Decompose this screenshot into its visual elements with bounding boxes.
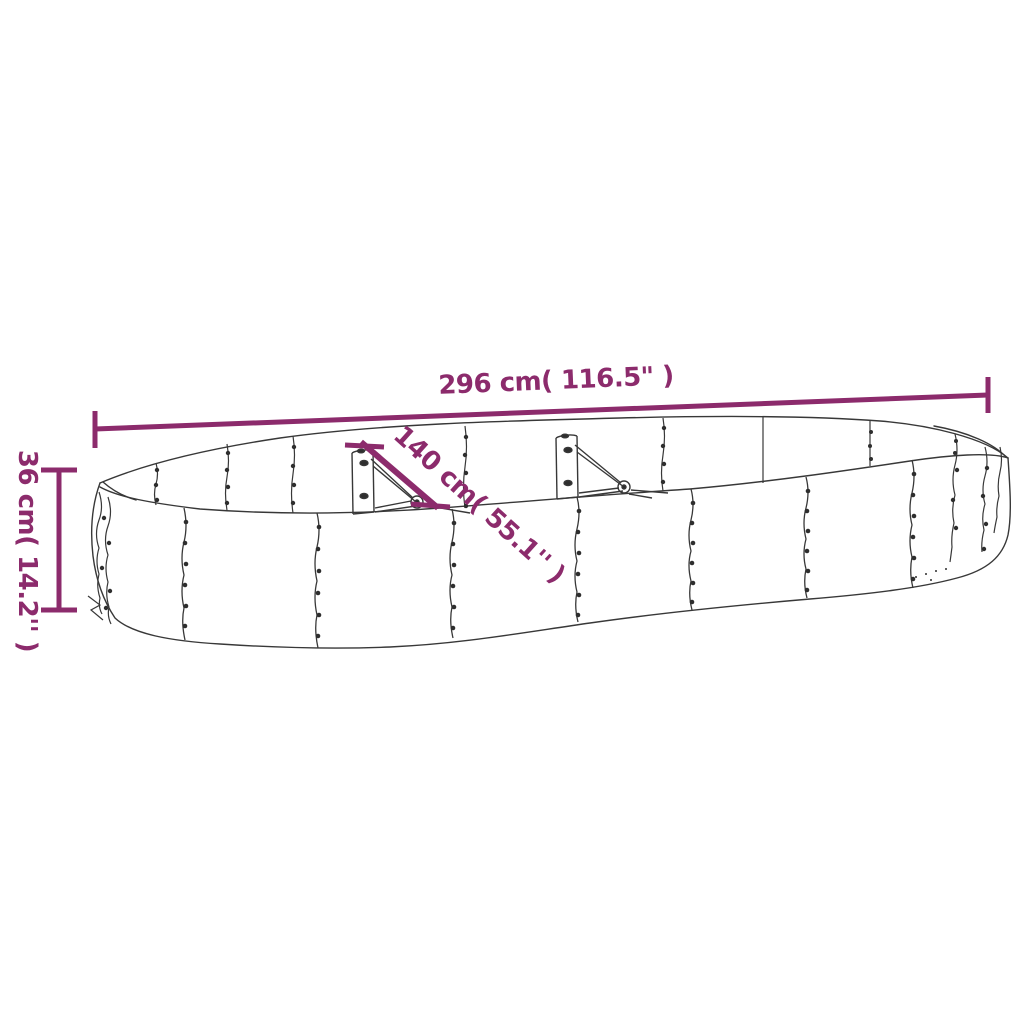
height-dimension-line bbox=[41, 470, 77, 610]
bed-end-corrugation bbox=[88, 447, 1002, 624]
bed-post-2 bbox=[556, 434, 668, 499]
dimension-diagram: 296 cm( 116.5" ) 140 cm( 55.1'' ) 36 cm(… bbox=[0, 0, 1024, 1024]
height-dimension-label: 36 cm( 14.2'' ) bbox=[14, 450, 40, 652]
garden-bed-drawing bbox=[0, 0, 1024, 1024]
bed-end-rivets bbox=[100, 466, 989, 610]
bed-outline bbox=[92, 416, 1011, 648]
